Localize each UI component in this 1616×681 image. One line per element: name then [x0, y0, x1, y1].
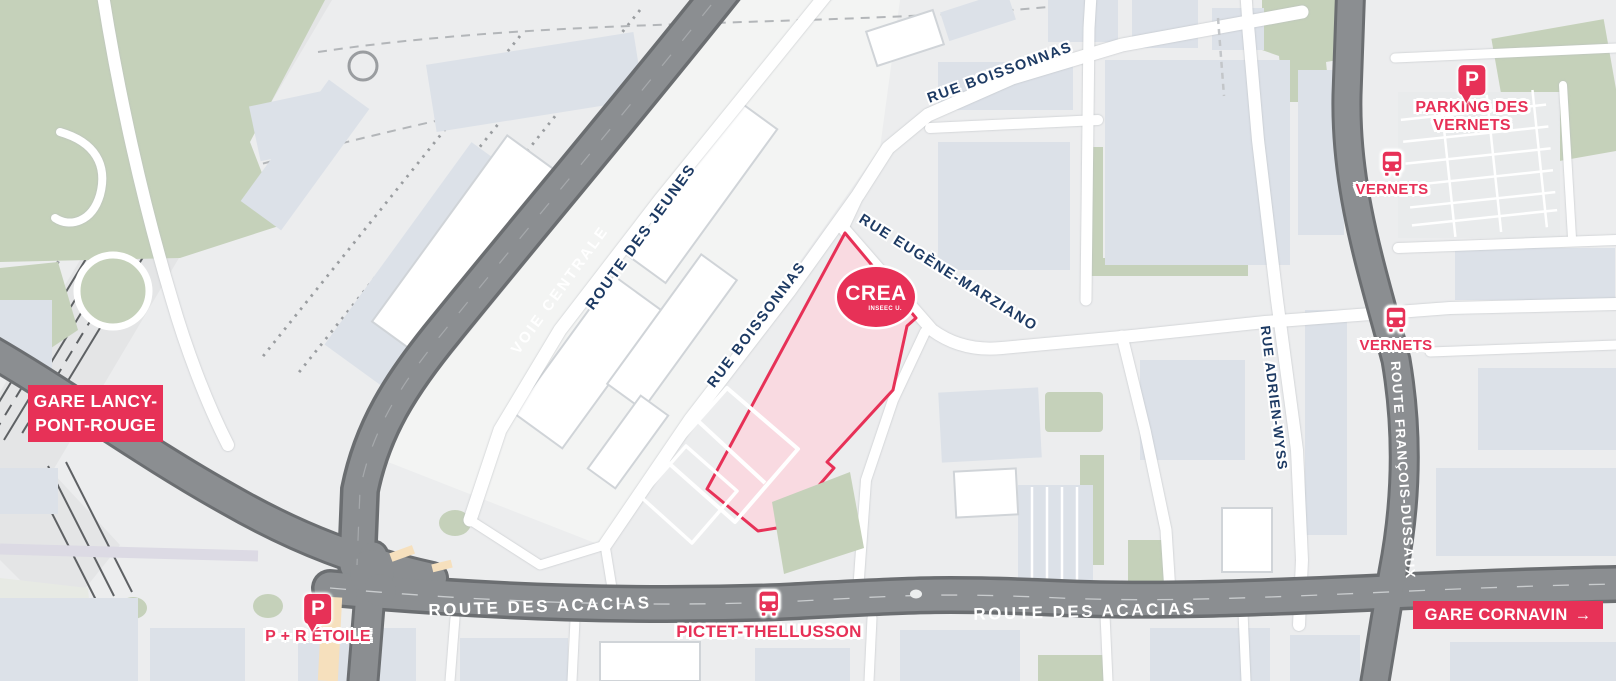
poi-vernets-stop-north: VERNETS	[1356, 149, 1429, 199]
poi-pictet-thellusson: PICTET-THELLUSSON	[676, 589, 862, 641]
parking-icon: P	[1459, 65, 1486, 95]
bus-icon	[1382, 305, 1409, 334]
parking-icon-letter: P	[1465, 68, 1479, 92]
poi-label-p-r-etoile: P + R ÉTOILE	[265, 628, 371, 646]
poi-label-line1: PARKING DES	[1415, 99, 1528, 117]
poi-label-vernets-south: VERNETS	[1360, 338, 1433, 355]
crea-logo: CREA INSEEC U.	[837, 267, 915, 327]
parking-icon-letter: P	[311, 597, 325, 621]
crea-logo-name: CREA	[845, 283, 907, 304]
badge-gare-lancy-pont-rouge: GARE LANCY- PONT-ROUGE	[28, 385, 163, 442]
badge-label: GARE CORNAVIN	[1425, 606, 1568, 625]
bus-icon	[756, 589, 783, 618]
poi-label-vernets-north: VERNETS	[1356, 182, 1429, 199]
poi-vernets-stop-south: VERNETS	[1360, 305, 1433, 355]
badge-line1: GARE LANCY-	[34, 390, 158, 414]
badge-line2: PONT-ROUGE	[35, 414, 156, 438]
map-canvas: VOIE CENTRALE ROUTE DES JEUNES RUE BOISS…	[0, 0, 1616, 681]
badge-gare-cornavin: GARE CORNAVIN →	[1413, 601, 1603, 629]
poi-parking-des-vernets: P PARKING DES VERNETS	[1415, 65, 1528, 135]
bus-icon	[1378, 149, 1405, 178]
poi-label-line2: VERNETS	[1415, 117, 1528, 135]
arrow-right-icon: →	[1575, 606, 1592, 625]
poi-label-parking-des-vernets: PARKING DES VERNETS	[1415, 99, 1528, 135]
crea-logo-subname: INSEEC U.	[868, 306, 902, 312]
poi-label-pictet-thellusson: PICTET-THELLUSSON	[676, 622, 862, 641]
parking-icon: P	[305, 594, 332, 624]
poi-p-r-etoile: P P + R ÉTOILE	[265, 594, 371, 646]
